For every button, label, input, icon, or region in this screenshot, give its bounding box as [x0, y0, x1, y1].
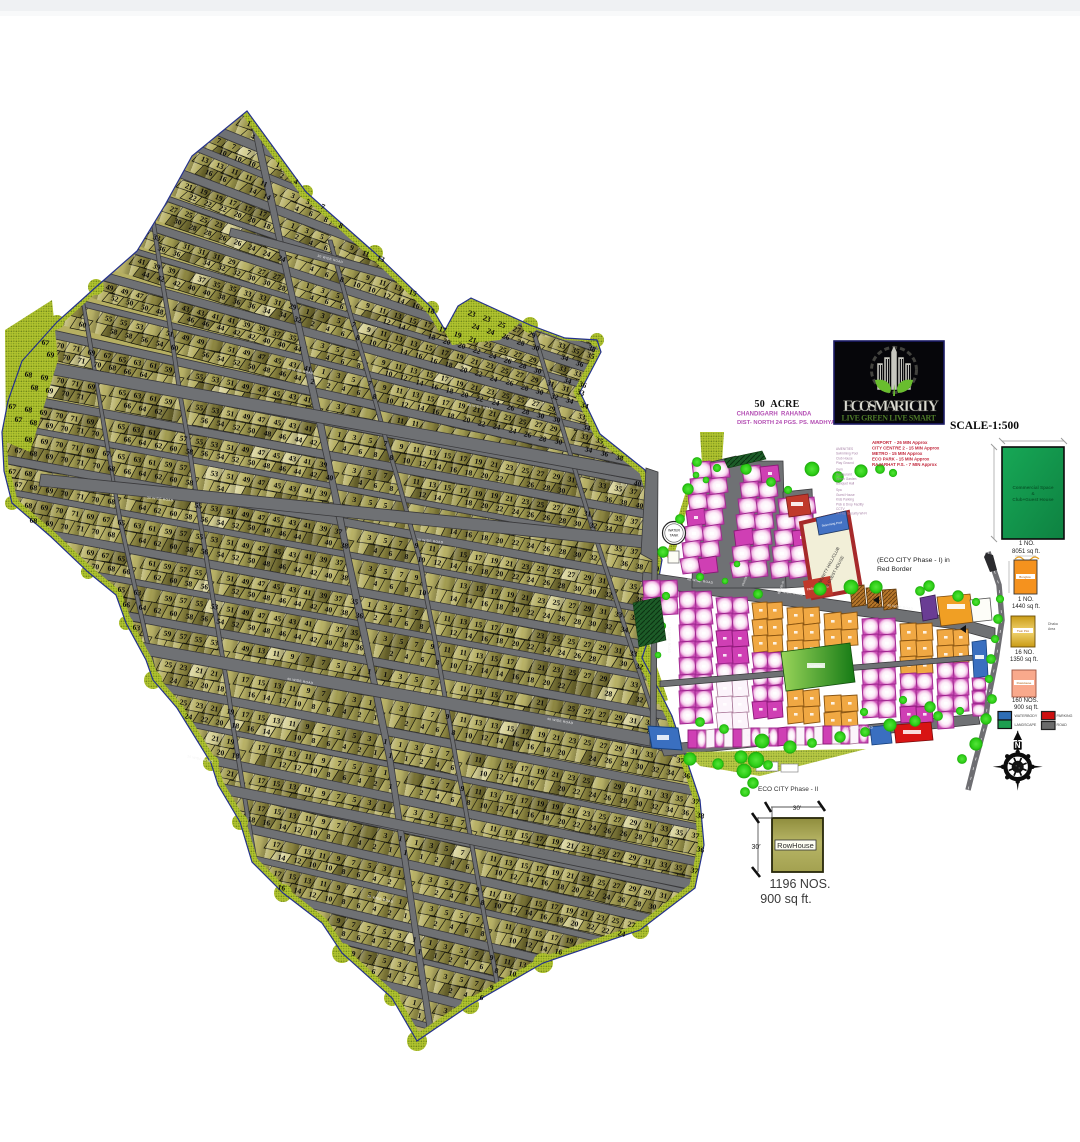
svg-text:ECO CITY Phase - II: ECO CITY Phase - II: [758, 786, 818, 793]
svg-text:16 NO.: 16 NO.: [1015, 650, 1034, 656]
svg-text:30′: 30′: [793, 805, 802, 812]
svg-text:Swimming Pool: Swimming Pool: [836, 452, 858, 456]
svg-text:Play Ground: Play Ground: [836, 461, 854, 465]
svg-text:AIRPORT - 26 MIN Approx: AIRPORT - 26 MIN Approx: [872, 440, 928, 445]
svg-text:LIVE GREEN LIVE SMART: LIVE GREEN LIVE SMART: [842, 414, 937, 423]
svg-text:CITY CENTRE 2 - 15 MIN Approx: CITY CENTRE 2 - 15 MIN Approx: [872, 446, 940, 451]
svg-text:RowHouse: RowHouse: [777, 841, 814, 850]
svg-text:160 NOS.: 160 NOS.: [1012, 698, 1039, 704]
svg-text:GARDEN: GARDEN: [810, 664, 823, 668]
svg-text:900 sq ft.: 900 sq ft.: [1014, 705, 1039, 711]
svg-text:Kids Parking: Kids Parking: [836, 498, 854, 502]
svg-text:50 ACRE: 50 ACRE: [755, 399, 800, 410]
svg-text:WATER: WATER: [668, 529, 680, 533]
svg-text:1440 sq ft.: 1440 sq ft.: [1012, 604, 1040, 610]
svg-text:30′: 30′: [751, 844, 761, 851]
svg-text:24 Hrs. Security Wi-Fi: 24 Hrs. Security Wi-Fi: [836, 512, 867, 516]
svg-text:CHANDIGARH RAHANDA: CHANDIGARH RAHANDA: [737, 412, 812, 418]
svg-text:TANK: TANK: [670, 534, 680, 538]
svg-text:ECOSMARTCITY: ECOSMARTCITY: [843, 398, 939, 415]
svg-text:Restaurant: Restaurant: [836, 472, 852, 476]
svg-text:8051 sq ft.: 8051 sq ft.: [1012, 549, 1040, 555]
svg-text:30 WIDE ROAD: 30 WIDE ROAD: [667, 627, 671, 654]
svg-text:Bunglow: Bunglow: [1019, 575, 1031, 579]
svg-text:PARKING: PARKING: [1057, 714, 1073, 718]
svg-text:LANDSCAPE: LANDSCAPE: [1015, 723, 1037, 727]
svg-text:Guest House: Guest House: [836, 493, 855, 497]
svg-text:METRO - 15 MIN Approx: METRO - 15 MIN Approx: [872, 451, 923, 456]
svg-text:Twin Plot: Twin Plot: [1017, 629, 1029, 633]
svg-text:Club+Guest House: Club+Guest House: [1012, 497, 1054, 502]
svg-text:ECO PARK - 15 MIN Approx: ECO PARK - 15 MIN Approx: [872, 457, 930, 462]
svg-text:RAJARHAT P.S. - 7 MIN Approx: RAJARHAT P.S. - 7 MIN Approx: [872, 462, 937, 467]
svg-text:1 NO.: 1 NO.: [1019, 541, 1035, 547]
svg-text:1350 sq ft.: 1350 sq ft.: [1010, 657, 1038, 663]
svg-text:Area: Area: [1048, 627, 1055, 631]
svg-text:Red Border: Red Border: [877, 566, 912, 573]
svg-text:Pick & Drop Facility: Pick & Drop Facility: [836, 502, 864, 506]
svg-text:Dhaka: Dhaka: [1048, 622, 1058, 626]
svg-text:Club House: Club House: [836, 456, 853, 460]
svg-text:AMENITIES: AMENITIES: [836, 447, 853, 451]
svg-text:N: N: [1015, 741, 1021, 750]
svg-text:SCALE-1:500: SCALE-1:500: [950, 420, 1019, 432]
svg-text:900 sq ft.: 900 sq ft.: [760, 892, 811, 906]
svg-text:Commercial Space: Commercial Space: [1012, 485, 1054, 490]
svg-text:RowHouse: RowHouse: [1017, 681, 1032, 685]
svg-text:ROAD: ROAD: [1057, 723, 1068, 727]
svg-text:WATERBODY: WATERBODY: [1015, 714, 1038, 718]
svg-text:Banquet Hall: Banquet Hall: [836, 482, 855, 486]
svg-text:CCTV: CCTV: [836, 507, 846, 511]
svg-text:Green Garden: Green Garden: [836, 477, 857, 481]
svg-text:1 NO.: 1 NO.: [1018, 597, 1034, 603]
svg-text:Spa: Spa: [836, 488, 842, 492]
svg-text:Gym: Gym: [836, 468, 843, 472]
svg-text:(ECO CITY Phase - I) in: (ECO CITY Phase - I) in: [877, 557, 950, 564]
svg-text:1196 NOS.: 1196 NOS.: [770, 877, 831, 891]
